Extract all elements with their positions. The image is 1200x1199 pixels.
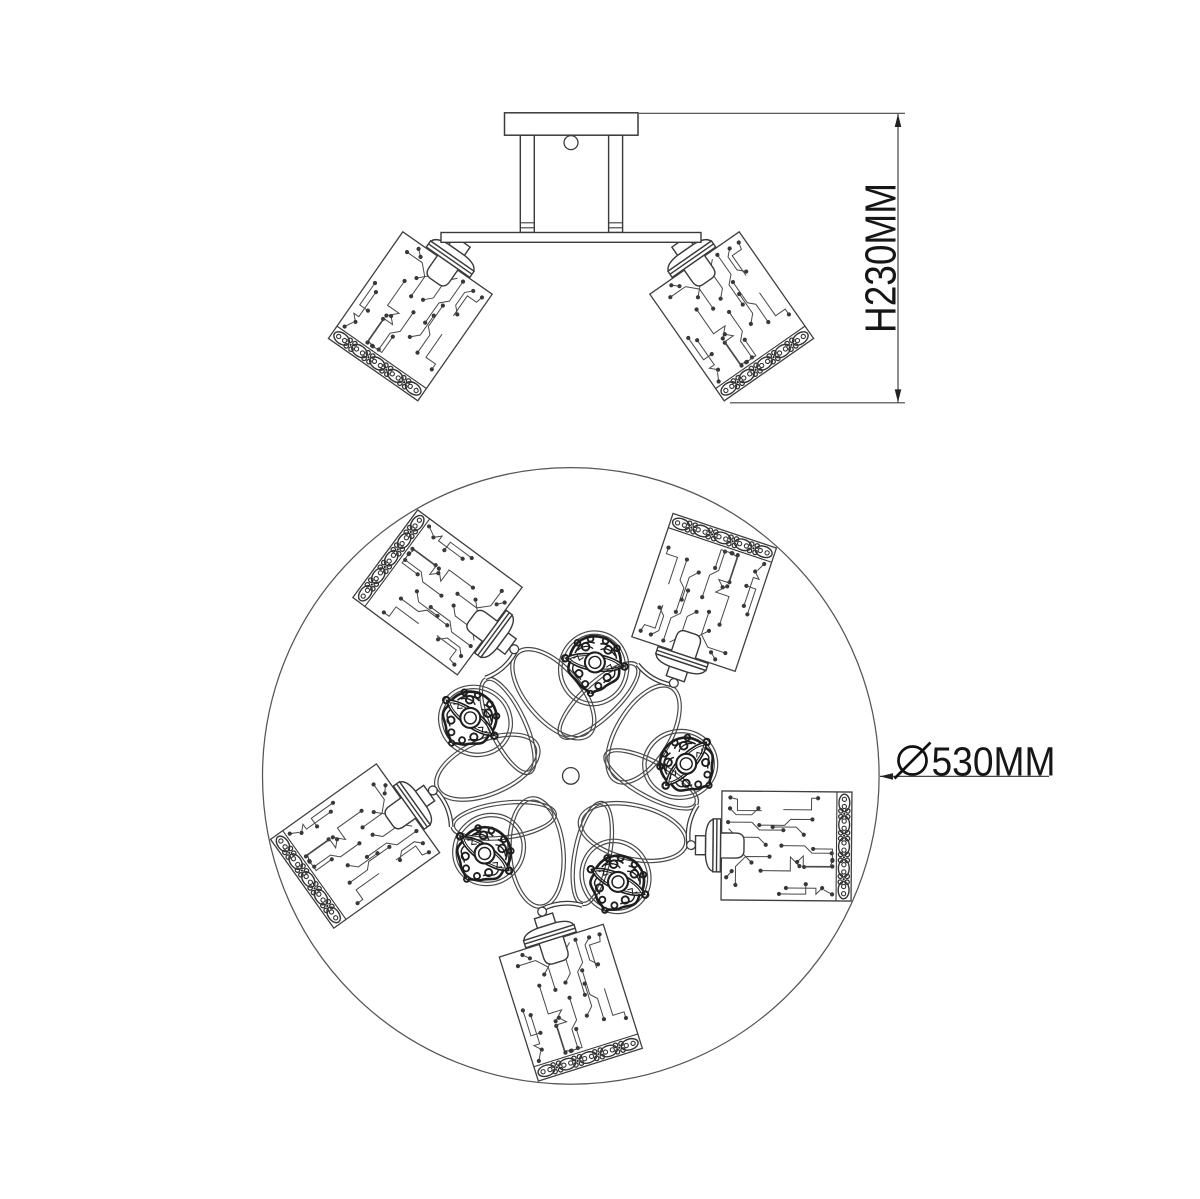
svg-text:H230MM: H230MM xyxy=(857,183,906,333)
svg-text:530MM: 530MM xyxy=(932,739,1056,785)
